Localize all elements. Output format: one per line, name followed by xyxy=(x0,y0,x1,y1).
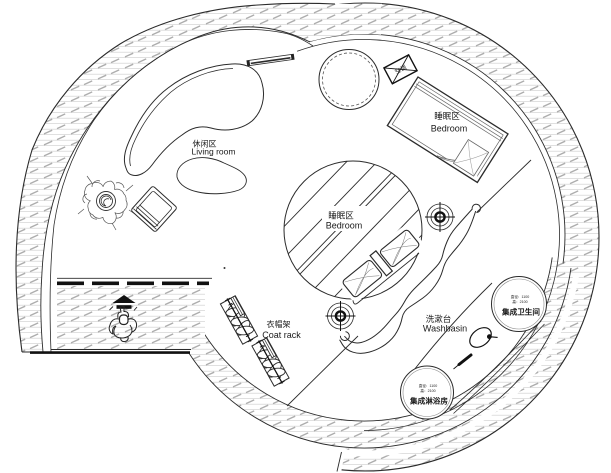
svg-text:Living room: Living room xyxy=(192,147,236,157)
svg-text:Bedroom: Bedroom xyxy=(326,221,363,231)
svg-text:睡眠区: 睡眠区 xyxy=(434,111,460,121)
svg-text:洗漱台: 洗漱台 xyxy=(426,314,452,324)
svg-text:Washbasin: Washbasin xyxy=(423,324,467,334)
svg-text:直径：1100: 直径：1100 xyxy=(511,294,530,299)
svg-text:睡眠区: 睡眠区 xyxy=(328,211,354,221)
svg-text:Coat rack: Coat rack xyxy=(262,330,301,340)
svg-text:衣帽架: 衣帽架 xyxy=(267,319,291,329)
svg-text:高：2100: 高：2100 xyxy=(420,388,435,393)
svg-text:Bedroom: Bedroom xyxy=(431,124,468,134)
svg-text:集成卫生间: 集成卫生间 xyxy=(501,307,540,317)
svg-text:高：2100: 高：2100 xyxy=(512,299,527,304)
svg-text:集成淋浴房: 集成淋浴房 xyxy=(409,396,448,406)
svg-text:直径：1100: 直径：1100 xyxy=(419,383,438,388)
